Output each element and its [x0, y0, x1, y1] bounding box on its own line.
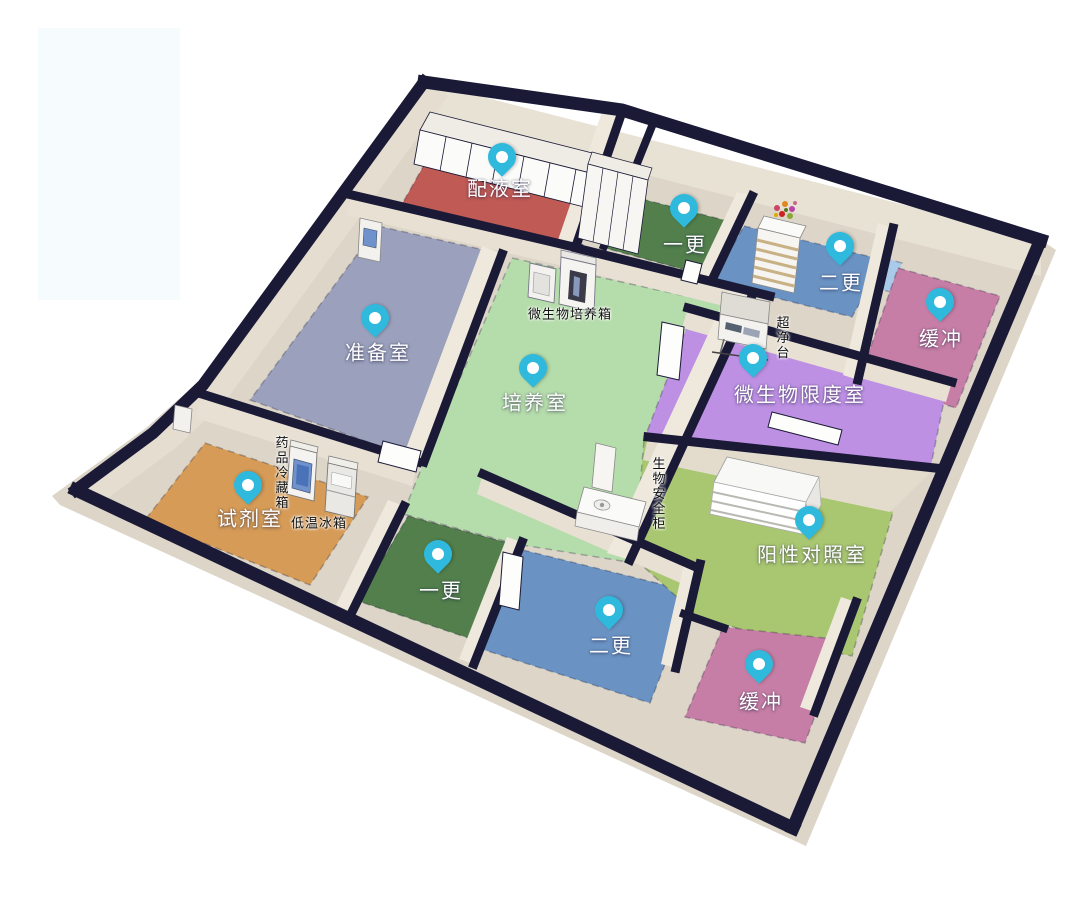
room-label-yangxing-duizhaoshi: 阳性对照室 — [757, 539, 867, 568]
room-label-yigeng-bottom: 一更 — [419, 575, 463, 604]
room-label-ergeng-top: 二更 — [819, 267, 863, 296]
wall-panel-box — [173, 405, 192, 433]
room-label-huanchong-bottom: 缓冲 — [739, 686, 783, 715]
room-label-yigeng-top: 一更 — [663, 229, 707, 258]
equipment-label-incubator: 微生物培养箱 — [528, 304, 612, 323]
equipment-label-freezer: 低温冰箱 — [291, 513, 347, 532]
equipment-label-medicine-fridge: 药品冷藏箱 — [271, 436, 290, 511]
low-temp-freezer — [325, 456, 358, 518]
room-label-huanchong-top: 缓冲 — [919, 323, 963, 352]
floorplan-drawing — [0, 0, 1068, 918]
medicine-fridge — [287, 440, 318, 501]
room-label-weishengwu-xiandushi: 微生物限度室 — [734, 379, 866, 408]
lab-floorplan: 配液室 一更 二更 缓冲 准备室 培养室 微生物限度室 试剂室 一更 二更 阳性… — [0, 0, 1068, 918]
room-label-peiyeshi: 配液室 — [467, 173, 533, 202]
room-label-zhunbeishi: 准备室 — [345, 337, 411, 366]
equipment-label-biosafety-cabinet: 生物安全柜 — [648, 457, 667, 532]
equipment-label-clean-bench: 超净台 — [772, 316, 791, 361]
wall-device — [358, 218, 382, 262]
room-label-peiyangshi: 培养室 — [502, 387, 568, 416]
room-label-ergeng-bottom: 二更 — [589, 630, 633, 659]
